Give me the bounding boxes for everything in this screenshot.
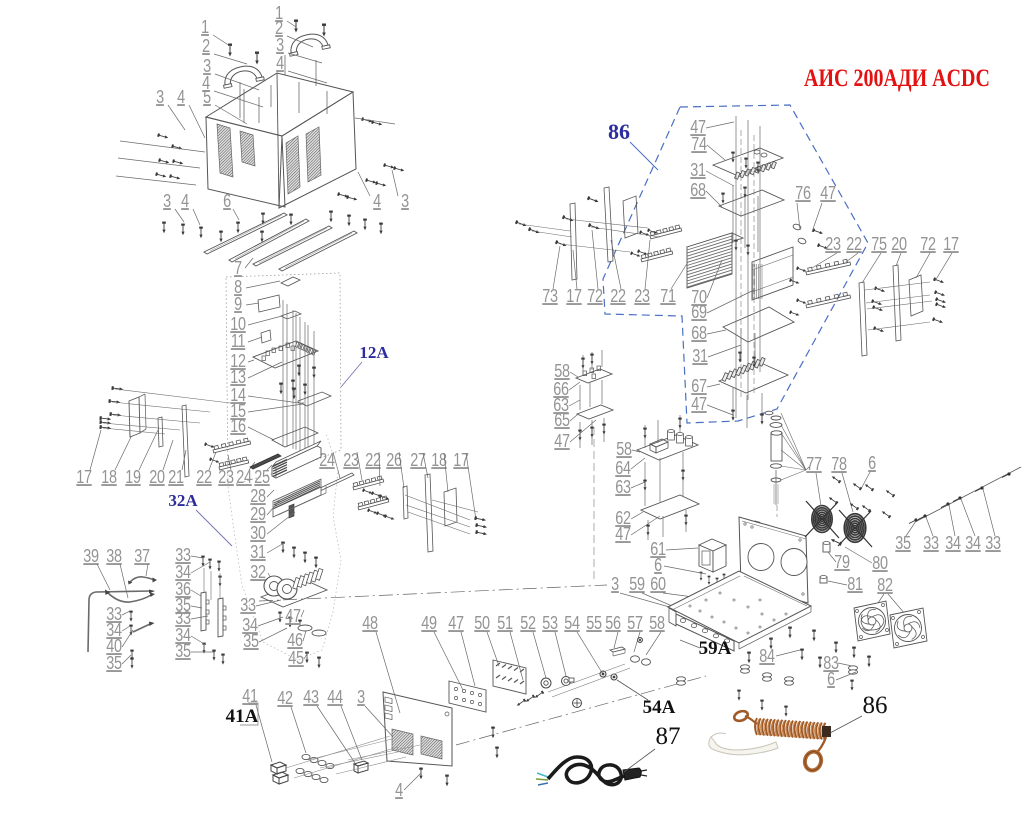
svg-text:81: 81 (847, 573, 863, 594)
svg-text:41A: 41A (226, 706, 259, 727)
svg-text:45: 45 (288, 647, 304, 668)
svg-text:32A: 32A (168, 491, 198, 510)
svg-text:34: 34 (965, 532, 981, 553)
svg-text:82: 82 (877, 574, 893, 595)
svg-text:54: 54 (564, 612, 580, 633)
svg-text:79: 79 (834, 551, 850, 572)
svg-text:58: 58 (649, 612, 665, 633)
svg-text:49: 49 (421, 612, 437, 633)
svg-text:4: 4 (181, 190, 189, 211)
svg-text:78: 78 (831, 453, 847, 474)
svg-text:47: 47 (615, 523, 631, 544)
svg-text:39: 39 (83, 545, 99, 566)
svg-text:11: 11 (231, 330, 245, 351)
svg-text:51: 51 (497, 612, 513, 633)
svg-text:24: 24 (319, 449, 335, 470)
svg-text:5: 5 (203, 86, 211, 107)
svg-text:23: 23 (343, 449, 359, 470)
svg-text:75: 75 (871, 233, 887, 254)
svg-text:59A: 59A (699, 638, 732, 659)
svg-text:17: 17 (76, 466, 92, 487)
svg-text:3: 3 (163, 190, 171, 211)
svg-text:17: 17 (943, 233, 959, 254)
svg-text:52: 52 (520, 612, 536, 633)
svg-text:3: 3 (357, 686, 365, 707)
svg-text:44: 44 (327, 686, 343, 707)
svg-text:21: 21 (168, 466, 184, 487)
svg-text:69: 69 (691, 301, 707, 322)
svg-text:50: 50 (474, 612, 490, 633)
svg-text:63: 63 (615, 476, 631, 497)
svg-text:57: 57 (627, 612, 643, 633)
svg-text:3: 3 (156, 86, 164, 107)
svg-text:31: 31 (250, 541, 266, 562)
svg-text:47: 47 (554, 430, 570, 451)
svg-text:17: 17 (566, 285, 582, 306)
svg-text:42: 42 (277, 687, 293, 708)
svg-text:22: 22 (846, 233, 862, 254)
svg-text:86: 86 (863, 692, 888, 719)
svg-text:87: 87 (656, 723, 681, 750)
svg-text:68: 68 (691, 322, 707, 343)
svg-text:23: 23 (825, 233, 841, 254)
svg-text:35: 35 (895, 532, 911, 553)
svg-text:47: 47 (820, 182, 836, 203)
svg-text:53: 53 (542, 612, 558, 633)
svg-text:77: 77 (806, 453, 822, 474)
svg-text:23: 23 (634, 285, 650, 306)
svg-text:33: 33 (240, 594, 256, 615)
svg-text:6: 6 (223, 190, 231, 211)
svg-text:20: 20 (891, 233, 907, 254)
svg-text:72: 72 (587, 285, 603, 306)
svg-text:22: 22 (610, 285, 626, 306)
svg-text:47: 47 (285, 605, 301, 626)
svg-text:4: 4 (395, 779, 403, 800)
svg-text:2: 2 (202, 35, 210, 56)
svg-text:33: 33 (985, 532, 1001, 553)
svg-text:4: 4 (276, 52, 284, 73)
svg-text:86: 86 (608, 119, 630, 144)
svg-text:73: 73 (542, 285, 558, 306)
svg-text:35: 35 (243, 630, 259, 651)
svg-text:35: 35 (106, 652, 122, 673)
svg-text:6: 6 (868, 452, 876, 473)
svg-text:48: 48 (362, 612, 378, 633)
svg-text:72: 72 (920, 233, 936, 254)
svg-text:74: 74 (691, 133, 707, 154)
svg-text:18: 18 (101, 466, 117, 487)
svg-text:76: 76 (795, 182, 811, 203)
svg-text:38: 38 (106, 545, 122, 566)
svg-text:3: 3 (611, 573, 619, 594)
svg-text:34: 34 (945, 532, 961, 553)
svg-text:АИС 200АДИ ACDC: АИС 200АДИ ACDC (804, 64, 990, 92)
svg-text:31: 31 (690, 159, 706, 180)
svg-text:65: 65 (554, 409, 570, 430)
svg-text:80: 80 (872, 552, 888, 573)
svg-text:47: 47 (691, 393, 707, 414)
svg-text:4: 4 (373, 190, 381, 211)
svg-text:33: 33 (923, 532, 939, 553)
svg-text:37: 37 (134, 545, 150, 566)
svg-text:27: 27 (410, 449, 426, 470)
svg-text:68: 68 (690, 179, 706, 200)
svg-text:26: 26 (386, 449, 402, 470)
svg-text:12A: 12A (359, 343, 389, 362)
svg-text:3: 3 (401, 190, 409, 211)
svg-text:60: 60 (650, 573, 666, 594)
svg-text:32: 32 (250, 561, 266, 582)
svg-text:43: 43 (303, 686, 319, 707)
svg-text:9: 9 (234, 293, 242, 314)
svg-text:17: 17 (453, 449, 469, 470)
svg-text:19: 19 (125, 466, 141, 487)
svg-text:4: 4 (177, 86, 185, 107)
svg-text:84: 84 (759, 645, 775, 666)
svg-text:20: 20 (149, 466, 165, 487)
svg-text:6: 6 (827, 668, 835, 689)
svg-text:31: 31 (692, 345, 708, 366)
svg-text:22: 22 (365, 449, 381, 470)
svg-text:16: 16 (230, 415, 246, 436)
svg-text:59: 59 (629, 573, 645, 594)
svg-text:35: 35 (175, 640, 191, 661)
svg-text:71: 71 (660, 285, 676, 306)
svg-text:55: 55 (586, 612, 602, 633)
svg-text:47: 47 (448, 612, 464, 633)
svg-text:56: 56 (605, 612, 621, 633)
